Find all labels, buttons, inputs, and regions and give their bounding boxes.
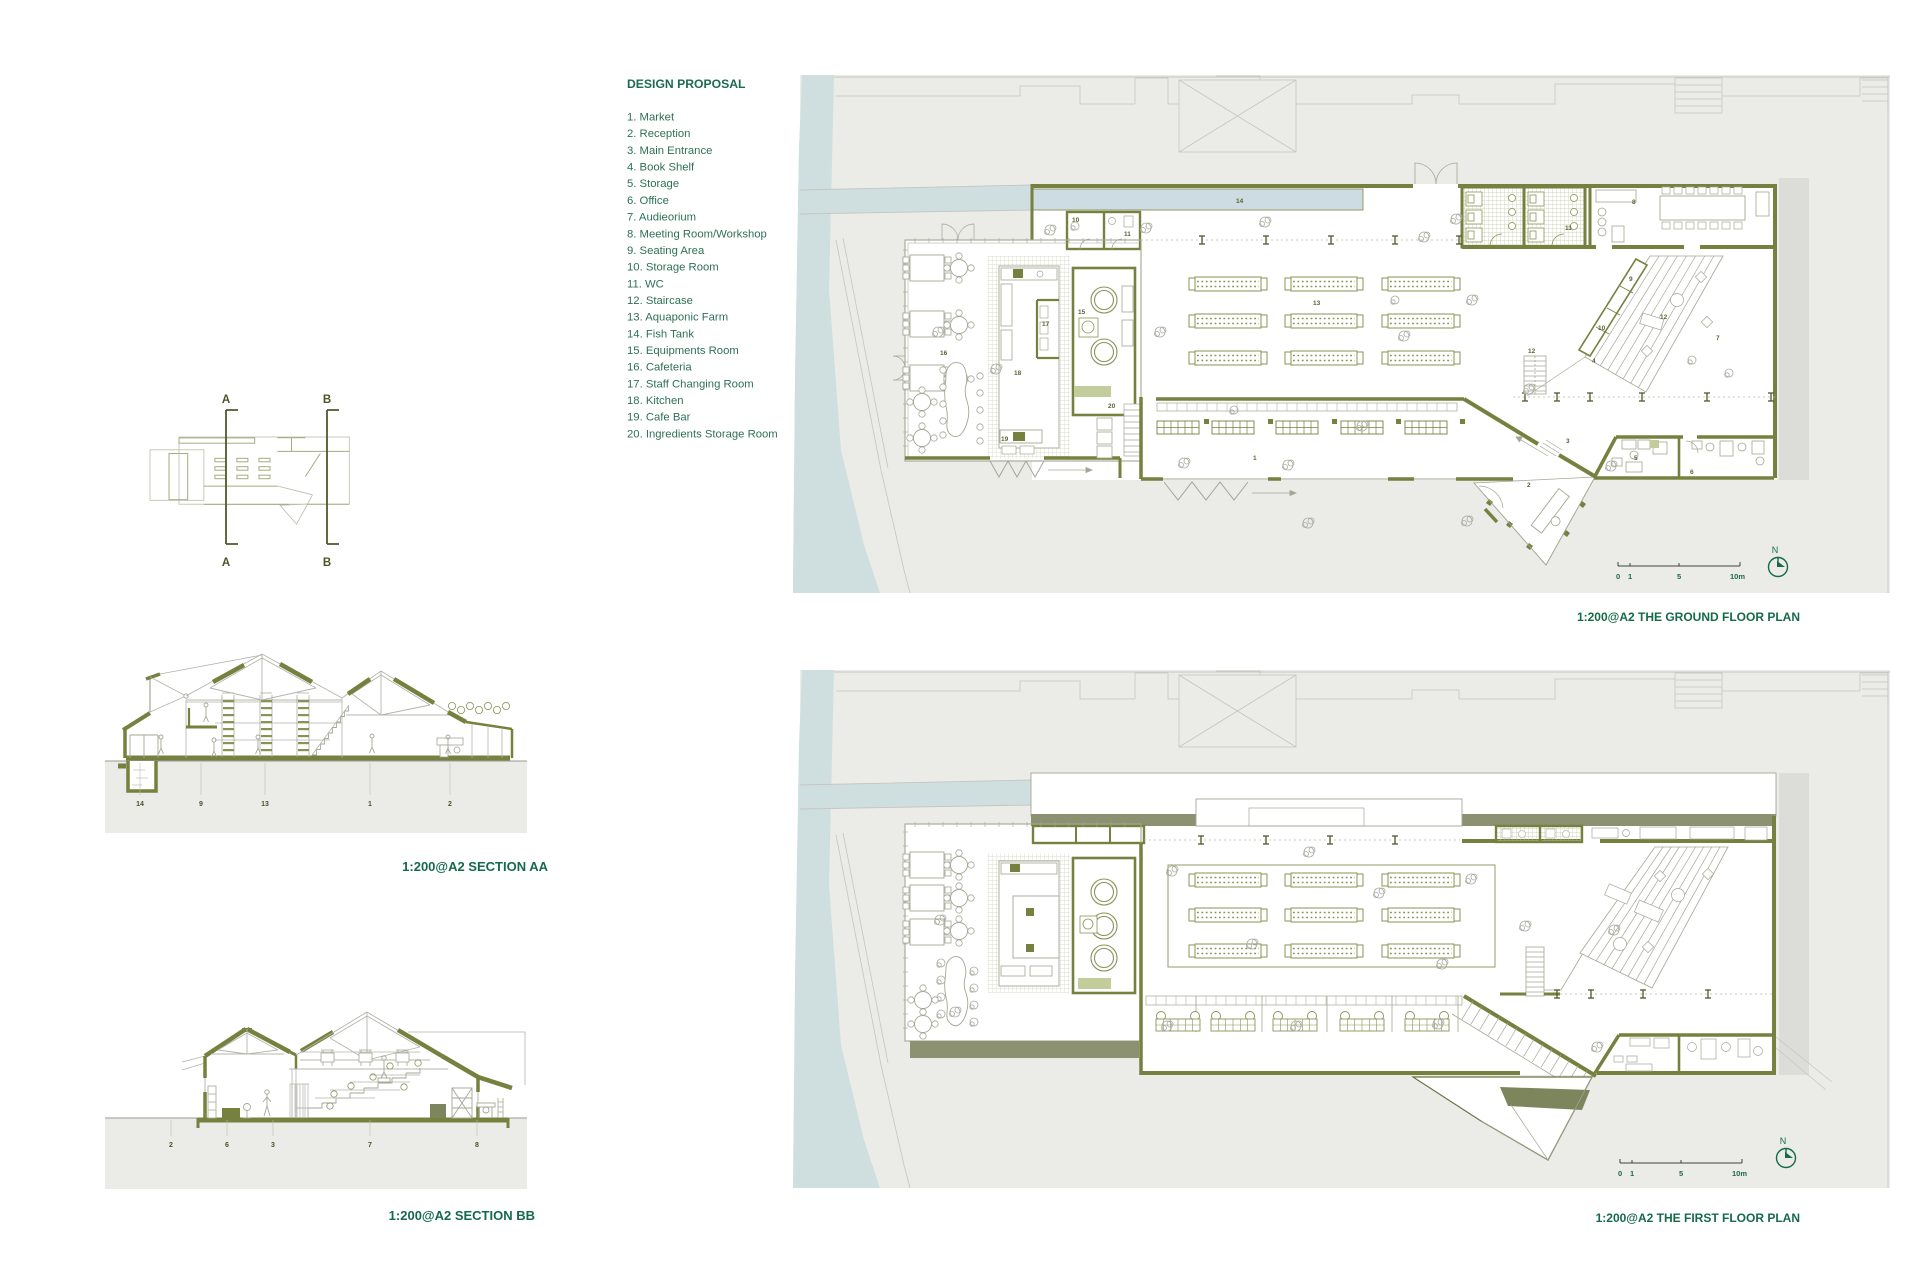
- svg-text:0: 0: [1616, 572, 1620, 581]
- svg-text:19: 19: [1001, 436, 1009, 443]
- svg-text:9. Seating Area: 9. Seating Area: [627, 245, 705, 257]
- svg-text:0: 0: [1618, 1169, 1622, 1178]
- svg-text:20: 20: [1108, 403, 1116, 410]
- svg-text:1:200@A2 THE FIRST FLOOR PLAN: 1:200@A2 THE FIRST FLOOR PLAN: [1596, 1211, 1800, 1225]
- svg-text:3: 3: [271, 1142, 275, 1149]
- svg-text:7. Audieorium: 7. Audieorium: [627, 212, 696, 224]
- svg-text:10. Storage Room: 10. Storage Room: [627, 262, 719, 274]
- svg-text:13: 13: [261, 801, 269, 808]
- svg-text:B: B: [323, 557, 331, 569]
- svg-text:4. Book Shelf: 4. Book Shelf: [627, 162, 695, 174]
- svg-text:2. Reception: 2. Reception: [627, 128, 690, 140]
- svg-text:6: 6: [225, 1142, 229, 1149]
- svg-text:3: 3: [1566, 438, 1570, 445]
- svg-text:7: 7: [1716, 335, 1720, 342]
- svg-text:4: 4: [1592, 358, 1596, 365]
- svg-text:11. WC: 11. WC: [627, 278, 664, 290]
- svg-text:7: 7: [368, 1142, 372, 1149]
- svg-text:1: 1: [1628, 572, 1632, 581]
- svg-text:9: 9: [199, 801, 203, 808]
- svg-text:3. Main Entrance: 3. Main Entrance: [627, 145, 712, 157]
- svg-text:1: 1: [1253, 455, 1257, 462]
- svg-text:12. Staircase: 12. Staircase: [627, 295, 693, 307]
- svg-text:18. Kitchen: 18. Kitchen: [627, 395, 684, 407]
- svg-text:14. Fish Tank: 14. Fish Tank: [627, 328, 694, 340]
- svg-text:10: 10: [1598, 325, 1606, 332]
- svg-text:12: 12: [1528, 348, 1536, 355]
- svg-text:8: 8: [1632, 199, 1636, 206]
- svg-text:11: 11: [1565, 225, 1572, 232]
- svg-text:10m: 10m: [1732, 1169, 1747, 1178]
- svg-text:5: 5: [1677, 572, 1681, 581]
- svg-text:DESIGN PROPOSAL: DESIGN PROPOSAL: [627, 77, 746, 91]
- svg-text:10m: 10m: [1730, 572, 1745, 581]
- svg-text:B: B: [323, 394, 331, 406]
- svg-text:5. Storage: 5. Storage: [627, 178, 679, 190]
- svg-text:6: 6: [1690, 469, 1694, 476]
- svg-text:9: 9: [1629, 276, 1633, 283]
- svg-text:6. Office: 6. Office: [627, 195, 669, 207]
- svg-text:15: 15: [1078, 309, 1086, 316]
- svg-text:1:200@A2 SECTION BB: 1:200@A2 SECTION BB: [389, 1208, 535, 1223]
- svg-text:14: 14: [1236, 198, 1244, 205]
- svg-text:20. Ingredients Storage Room: 20. Ingredients Storage Room: [627, 428, 778, 440]
- svg-text:11: 11: [1124, 231, 1131, 238]
- svg-text:5: 5: [1679, 1169, 1683, 1178]
- svg-text:5: 5: [1634, 455, 1638, 462]
- svg-text:1: 1: [368, 801, 372, 808]
- svg-text:2: 2: [169, 1142, 173, 1149]
- svg-text:N: N: [1780, 1136, 1787, 1146]
- svg-text:15. Equipments Room: 15. Equipments Room: [627, 345, 739, 357]
- svg-text:19. Cafe Bar: 19. Cafe Bar: [627, 412, 691, 424]
- svg-text:17: 17: [1042, 321, 1050, 328]
- svg-text:A: A: [222, 394, 230, 406]
- svg-text:16: 16: [940, 350, 948, 357]
- svg-text:10: 10: [1072, 217, 1080, 224]
- svg-text:17. Staff Changing Room: 17. Staff Changing Room: [627, 378, 754, 390]
- svg-text:1:200@A2 SECTION AA: 1:200@A2 SECTION AA: [402, 859, 548, 874]
- svg-text:16. Cafeteria: 16. Cafeteria: [627, 362, 692, 374]
- svg-text:A: A: [222, 557, 230, 569]
- svg-text:13: 13: [1313, 300, 1321, 307]
- svg-text:8: 8: [475, 1142, 479, 1149]
- svg-text:18: 18: [1014, 370, 1022, 377]
- svg-text:1: 1: [1630, 1169, 1634, 1178]
- svg-text:2: 2: [1527, 482, 1531, 489]
- svg-text:1. Market: 1. Market: [627, 112, 675, 124]
- svg-text:14: 14: [136, 801, 144, 808]
- svg-text:8. Meeting Room/Workshop: 8. Meeting Room/Workshop: [627, 228, 767, 240]
- svg-text:N: N: [1772, 545, 1779, 555]
- svg-text:2: 2: [448, 801, 452, 808]
- svg-text:1:200@A2 THE GROUND FLOOR PLAN: 1:200@A2 THE GROUND FLOOR PLAN: [1577, 610, 1800, 624]
- svg-text:13. Aquaponic Farm: 13. Aquaponic Farm: [627, 312, 728, 324]
- svg-text:12: 12: [1660, 314, 1668, 321]
